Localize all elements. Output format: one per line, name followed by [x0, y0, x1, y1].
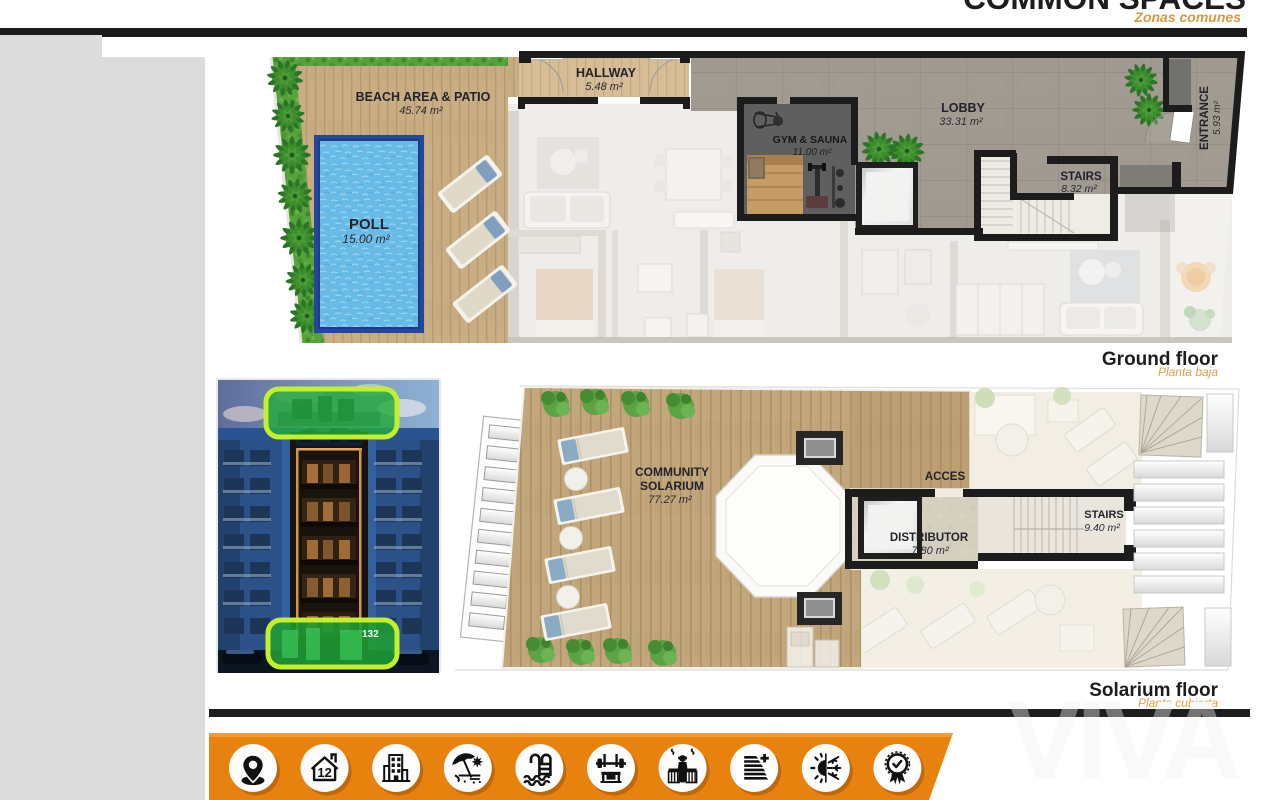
- svg-text:LOBBY: LOBBY: [941, 101, 985, 115]
- svg-text:STAIRS: STAIRS: [1084, 509, 1124, 521]
- svg-text:15.00 m²: 15.00 m²: [342, 232, 390, 246]
- svg-text:Zonas comunes: Zonas comunes: [1133, 9, 1241, 25]
- svg-text:9.40 m²: 9.40 m²: [1084, 522, 1120, 534]
- svg-text:GYM & SAUNA: GYM & SAUNA: [773, 134, 848, 146]
- svg-text:5.48 m²: 5.48 m²: [585, 81, 623, 93]
- svg-text:SOLARIUM: SOLARIUM: [640, 479, 704, 493]
- svg-text:POLL: POLL: [349, 216, 389, 233]
- svg-text:77.27 m²: 77.27 m²: [648, 494, 692, 506]
- svg-text:DISTRIBUTOR: DISTRIBUTOR: [890, 532, 969, 544]
- svg-text:ENTRANCE: ENTRANCE: [1199, 86, 1211, 150]
- svg-text:132: 132: [362, 629, 379, 640]
- svg-text:VIVA: VIVA: [1008, 679, 1239, 800]
- svg-text:12: 12: [317, 765, 331, 780]
- svg-text:45.74 m²: 45.74 m²: [399, 105, 443, 117]
- svg-text:Planta baja: Planta baja: [1158, 365, 1218, 379]
- svg-text:7.80 m²: 7.80 m²: [911, 545, 949, 557]
- svg-text:STAIRS: STAIRS: [1060, 171, 1102, 183]
- svg-text:BEACH AREA & PATIO: BEACH AREA & PATIO: [356, 90, 491, 104]
- svg-text:COMMUNITY: COMMUNITY: [635, 465, 709, 479]
- svg-text:11.00 m²: 11.00 m²: [793, 147, 832, 158]
- svg-text:33.31 m²: 33.31 m²: [939, 116, 983, 128]
- svg-text:HALLWAY: HALLWAY: [576, 66, 637, 80]
- svg-text:ACCES: ACCES: [925, 471, 966, 483]
- svg-text:5.93 m²: 5.93 m²: [1212, 100, 1223, 135]
